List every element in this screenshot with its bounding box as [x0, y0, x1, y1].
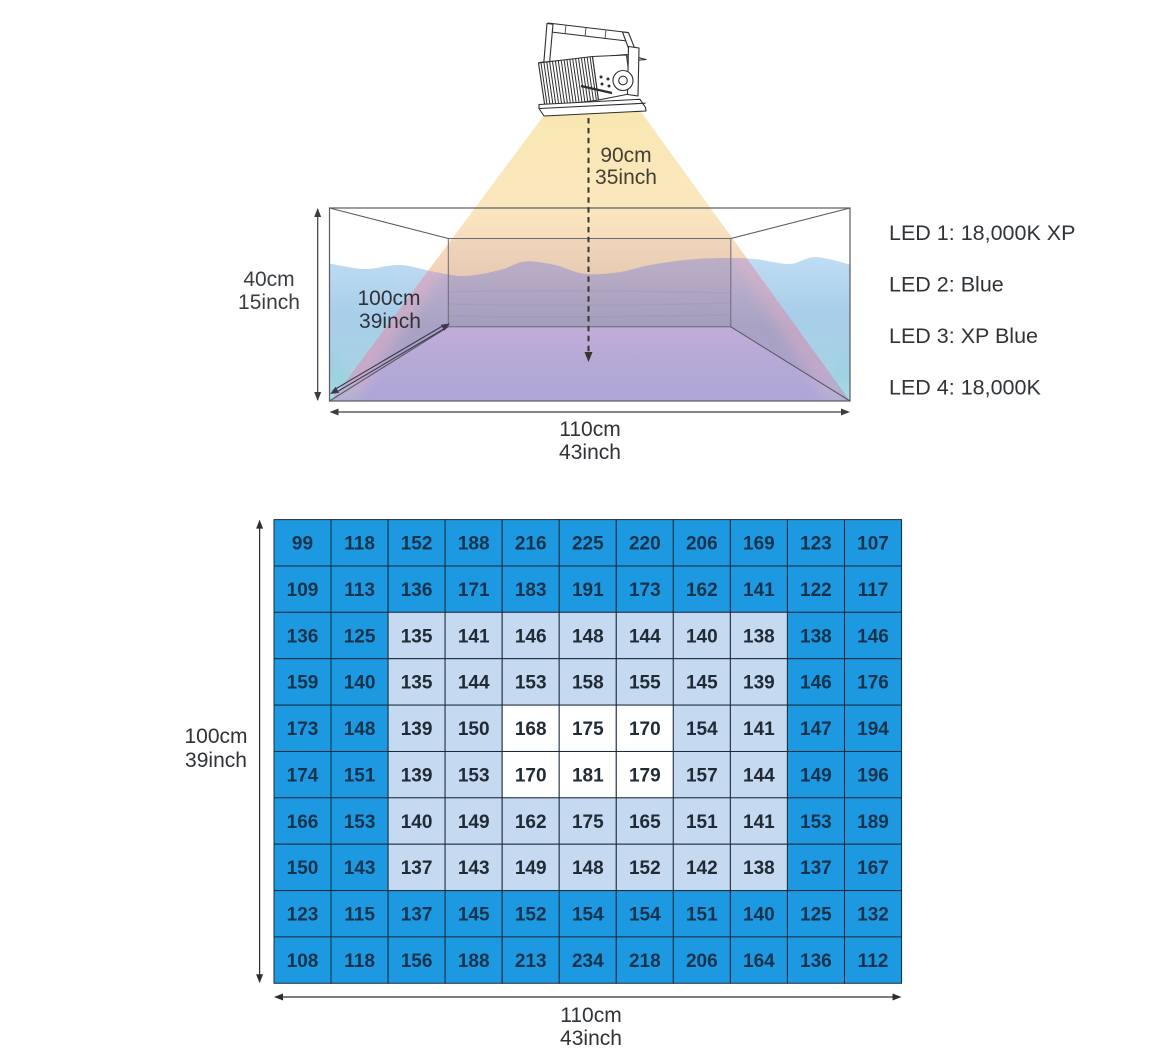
svg-text:146: 146	[800, 673, 832, 694]
svg-text:LED 1: 18,000K XP: LED 1: 18,000K XP	[889, 221, 1075, 245]
svg-text:194: 194	[857, 719, 889, 740]
svg-text:113: 113	[344, 580, 375, 601]
svg-text:166: 166	[287, 812, 319, 833]
svg-text:148: 148	[572, 626, 604, 647]
svg-text:146: 146	[857, 626, 889, 647]
svg-text:213: 213	[515, 951, 547, 972]
svg-text:149: 149	[458, 812, 490, 833]
svg-text:206: 206	[686, 951, 718, 972]
svg-text:108: 108	[287, 951, 319, 972]
svg-text:40cm: 40cm	[243, 268, 294, 291]
svg-text:155: 155	[629, 673, 661, 694]
svg-text:136: 136	[287, 626, 319, 647]
svg-text:220: 220	[629, 534, 661, 555]
svg-text:141: 141	[458, 626, 490, 647]
svg-text:206: 206	[686, 534, 718, 555]
svg-text:107: 107	[857, 534, 889, 555]
svg-text:137: 137	[800, 858, 832, 879]
svg-text:139: 139	[401, 765, 433, 786]
svg-text:188: 188	[458, 534, 490, 555]
svg-text:110cm: 110cm	[559, 418, 620, 441]
svg-text:123: 123	[800, 534, 832, 555]
svg-text:122: 122	[800, 580, 832, 601]
svg-text:132: 132	[857, 905, 889, 926]
svg-text:110cm: 110cm	[560, 1004, 621, 1027]
svg-text:140: 140	[686, 626, 718, 647]
svg-text:43inch: 43inch	[559, 441, 621, 464]
svg-text:15inch: 15inch	[238, 291, 300, 314]
svg-text:170: 170	[629, 719, 661, 740]
svg-text:175: 175	[572, 719, 604, 740]
svg-text:143: 143	[344, 858, 376, 879]
svg-text:123: 123	[287, 905, 319, 926]
svg-text:218: 218	[629, 951, 661, 972]
svg-text:149: 149	[800, 765, 832, 786]
svg-text:152: 152	[401, 534, 433, 555]
svg-text:157: 157	[686, 765, 718, 786]
svg-text:188: 188	[458, 951, 490, 972]
svg-text:167: 167	[857, 858, 889, 879]
svg-text:139: 139	[401, 719, 433, 740]
svg-text:151: 151	[686, 905, 718, 926]
svg-text:150: 150	[287, 858, 319, 879]
svg-text:LED 4: 18,000K: LED 4: 18,000K	[889, 376, 1041, 400]
svg-text:138: 138	[743, 858, 775, 879]
svg-text:153: 153	[344, 812, 376, 833]
svg-text:196: 196	[857, 765, 889, 786]
svg-text:35inch: 35inch	[595, 166, 657, 189]
svg-text:154: 154	[572, 905, 604, 926]
svg-text:149: 149	[515, 858, 547, 879]
svg-text:LED 3: XP Blue: LED 3: XP Blue	[889, 324, 1038, 348]
svg-text:153: 153	[458, 765, 490, 786]
svg-text:171: 171	[458, 580, 490, 601]
svg-text:135: 135	[401, 673, 433, 694]
svg-text:145: 145	[686, 673, 718, 694]
svg-text:138: 138	[800, 626, 832, 647]
svg-text:154: 154	[629, 905, 661, 926]
svg-text:144: 144	[629, 626, 661, 647]
svg-text:136: 136	[800, 951, 832, 972]
svg-text:144: 144	[743, 765, 775, 786]
svg-text:234: 234	[572, 951, 604, 972]
svg-text:140: 140	[401, 812, 433, 833]
svg-text:154: 154	[686, 719, 718, 740]
svg-text:115: 115	[344, 905, 375, 926]
svg-text:168: 168	[515, 719, 547, 740]
svg-text:39inch: 39inch	[185, 749, 247, 772]
svg-text:135: 135	[401, 626, 433, 647]
svg-text:138: 138	[743, 626, 775, 647]
svg-text:162: 162	[515, 812, 547, 833]
svg-text:137: 137	[401, 858, 433, 879]
svg-text:150: 150	[458, 719, 490, 740]
svg-text:136: 136	[401, 580, 433, 601]
svg-text:159: 159	[287, 673, 319, 694]
svg-text:144: 144	[458, 673, 490, 694]
svg-text:173: 173	[287, 719, 319, 740]
svg-text:43inch: 43inch	[560, 1027, 622, 1050]
svg-text:156: 156	[401, 951, 433, 972]
svg-text:140: 140	[743, 905, 775, 926]
svg-text:141: 141	[743, 812, 775, 833]
svg-text:146: 146	[515, 626, 547, 647]
svg-text:125: 125	[800, 905, 832, 926]
svg-text:39inch: 39inch	[359, 310, 421, 333]
svg-text:164: 164	[743, 951, 775, 972]
svg-text:137: 137	[401, 905, 433, 926]
svg-text:181: 181	[572, 765, 604, 786]
svg-text:LED 2: Blue: LED 2: Blue	[889, 273, 1004, 297]
svg-text:125: 125	[344, 626, 376, 647]
svg-text:175: 175	[572, 812, 604, 833]
svg-text:225: 225	[572, 534, 604, 555]
svg-text:148: 148	[344, 719, 376, 740]
svg-text:179: 179	[629, 765, 661, 786]
svg-text:151: 151	[344, 765, 376, 786]
svg-text:118: 118	[344, 534, 375, 555]
svg-text:153: 153	[800, 812, 832, 833]
svg-text:183: 183	[515, 580, 547, 601]
svg-text:118: 118	[344, 951, 375, 972]
svg-text:141: 141	[743, 580, 775, 601]
svg-text:143: 143	[458, 858, 490, 879]
svg-text:148: 148	[572, 858, 604, 879]
svg-text:165: 165	[629, 812, 661, 833]
svg-text:153: 153	[515, 673, 547, 694]
svg-text:176: 176	[857, 673, 889, 694]
svg-text:173: 173	[629, 580, 661, 601]
svg-text:90cm: 90cm	[600, 144, 651, 167]
svg-text:117: 117	[858, 580, 889, 601]
svg-text:191: 191	[572, 580, 604, 601]
svg-text:162: 162	[686, 580, 718, 601]
svg-text:174: 174	[287, 765, 319, 786]
svg-text:158: 158	[572, 673, 604, 694]
svg-text:151: 151	[686, 812, 718, 833]
svg-text:189: 189	[857, 812, 889, 833]
svg-text:112: 112	[858, 951, 889, 972]
svg-text:152: 152	[515, 905, 547, 926]
svg-text:170: 170	[515, 765, 547, 786]
svg-text:139: 139	[743, 673, 775, 694]
svg-text:141: 141	[743, 719, 775, 740]
svg-text:152: 152	[629, 858, 661, 879]
svg-text:100cm: 100cm	[184, 725, 247, 748]
svg-text:99: 99	[292, 534, 313, 555]
svg-text:145: 145	[458, 905, 490, 926]
svg-text:169: 169	[743, 534, 775, 555]
svg-text:216: 216	[515, 534, 547, 555]
svg-text:147: 147	[800, 719, 832, 740]
svg-text:109: 109	[287, 580, 319, 601]
svg-text:140: 140	[344, 673, 376, 694]
svg-text:100cm: 100cm	[357, 287, 420, 310]
svg-text:142: 142	[686, 858, 718, 879]
